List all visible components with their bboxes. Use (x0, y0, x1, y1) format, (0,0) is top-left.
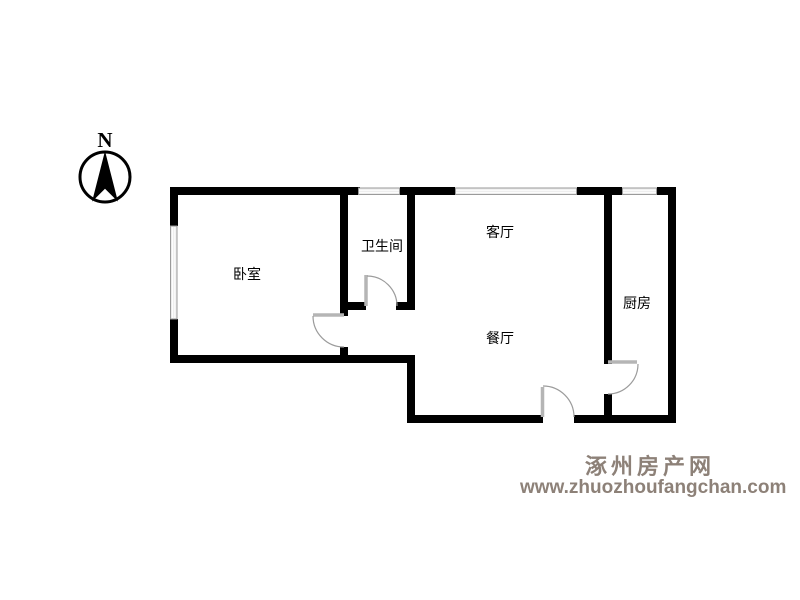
living-room-window (456, 188, 577, 195)
compass-north-icon: N (80, 128, 130, 202)
wall (170, 355, 415, 363)
watermark-site-name: 涿州房产网 (520, 455, 780, 478)
wall (340, 347, 348, 363)
bedroom-door (313, 315, 344, 347)
wall (170, 187, 360, 195)
room-label-dining-room: 餐厅 (486, 330, 514, 346)
room-labels: 卧室 卫生间 客厅 餐厅 厨房 (233, 224, 651, 346)
wall (574, 415, 676, 423)
room-label-living-room: 客厅 (486, 224, 514, 240)
kitchen-door (608, 362, 638, 394)
room-label-bathroom: 卫生间 (361, 238, 403, 254)
wall (340, 195, 348, 316)
wall (604, 195, 612, 364)
wall (407, 415, 543, 423)
bathroom-door (366, 275, 397, 306)
compass-needle (93, 153, 117, 200)
wall (604, 394, 612, 423)
wall (407, 355, 415, 423)
compass-label: N (97, 128, 112, 152)
wall (407, 195, 415, 310)
doors (313, 275, 638, 417)
floorplan-canvas: N (0, 0, 800, 600)
room-label-bedroom: 卧室 (233, 266, 261, 282)
watermark-site-url: www.zhuozhoufangchan.com (520, 478, 780, 498)
bathroom-window (359, 188, 400, 195)
walls (170, 187, 676, 423)
wall (170, 187, 178, 226)
kitchen-window (623, 188, 657, 195)
watermark: 涿州房产网 www.zhuozhoufangchan.com (520, 455, 780, 498)
wall (396, 302, 415, 310)
floorplan-drawing: N (0, 0, 800, 600)
entry-door (543, 386, 575, 417)
wall (340, 302, 366, 310)
room-label-kitchen: 厨房 (623, 295, 651, 311)
bedroom-window (171, 226, 178, 319)
wall (668, 187, 676, 423)
wall (400, 187, 455, 195)
wall (577, 187, 622, 195)
